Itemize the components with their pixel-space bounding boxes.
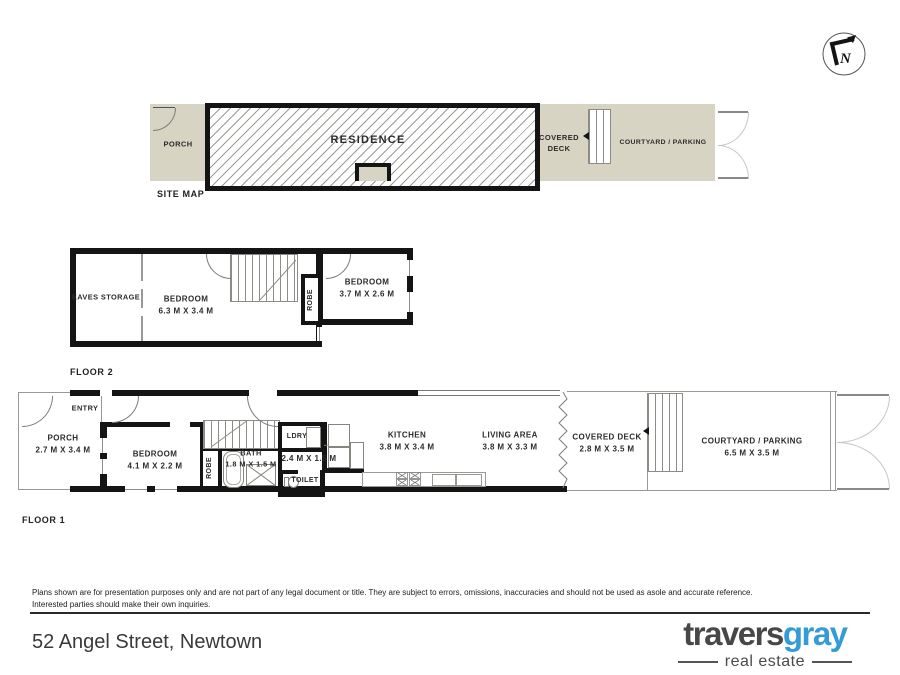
window (317, 327, 323, 341)
stove-icon (396, 472, 422, 486)
fridge-icon (328, 424, 350, 447)
boundary-line (647, 470, 648, 490)
wall (278, 491, 325, 497)
room-label-courtyard: COURTYARD / PARKING 6.5 M X 3.5 M (702, 435, 803, 458)
gate-swing-icon (837, 442, 890, 489)
brand-name-part1: travers (683, 615, 783, 652)
brand-name-part2: gray (783, 615, 847, 652)
room-label-kitchen: KITCHEN 3.8 M X 3.4 M (380, 429, 435, 452)
wall (320, 470, 325, 497)
stairs-direction-icon (583, 132, 589, 140)
room-label-bath: BATH 1.8 M X 1.5 M (225, 448, 276, 469)
boundary-line (567, 391, 837, 392)
divider (30, 612, 870, 614)
gate-swing-icon (718, 145, 749, 179)
divider-gap (140, 281, 144, 289)
room-label-f1-porch: PORCH 2.7 M X 3.4 M (36, 432, 91, 455)
room-label-f1-robe: ROBE (205, 457, 215, 479)
property-address: 52 Angel Street, Newtown (32, 631, 262, 654)
compass-n-letter: N (839, 51, 852, 67)
floorplan-page: N RESIDENCE PORCH COVERED DECK COURTYARD… (0, 0, 900, 675)
room-label-f2-bedroom1: BEDROOM 6.3 M X 3.4 M (159, 293, 214, 316)
room-label-f2-bedroom2: BEDROOM 3.7 M X 2.6 M (340, 276, 395, 299)
north-arrow-icon: N (819, 29, 869, 79)
room-label-eaves-storage: EAVES STORAGE (72, 293, 140, 304)
window-band (418, 390, 560, 396)
room-label-hall-dims: 2.4 M X 1.6 M (282, 453, 337, 465)
door-opening (170, 422, 190, 427)
room-label-deck: COVERED DECK 2.8 M X 3.5 M (572, 431, 641, 454)
window (407, 292, 413, 312)
room-label-site-porch: PORCH (163, 140, 192, 151)
tagline-dash (812, 661, 852, 663)
cabinet-icon (350, 442, 364, 469)
floor2-title: FLOOR 2 (70, 367, 113, 377)
fence-line (830, 392, 831, 491)
site-residence-notch (355, 163, 391, 181)
wall-left (100, 422, 107, 486)
room-label-site-covered-deck: COVERED DECK (539, 133, 579, 155)
boundary-line (567, 490, 837, 491)
room-label-f1-bedroom: BEDROOM 4.1 M X 2.2 M (128, 448, 183, 471)
brand-tagline: real estate (678, 653, 852, 671)
room-label-toilet: TOILET (291, 476, 318, 486)
deck-stairs (647, 393, 683, 472)
window (155, 486, 177, 492)
stairs-direction-icon (643, 427, 649, 435)
room-label-residence: RESIDENCE (331, 133, 406, 149)
gate-swing-icon (718, 112, 749, 146)
sink-icon (456, 474, 482, 486)
disclaimer-line1: Plans shown are for presentation purpose… (32, 587, 882, 599)
window (100, 438, 107, 453)
gate-swing-icon (837, 396, 890, 443)
room-label-entry: ENTRY (72, 404, 99, 415)
door-swing-icon (112, 396, 139, 423)
tagline-dash (678, 661, 718, 663)
site-map-title: SITE MAP (157, 189, 204, 199)
room-label-living: LIVING AREA 3.8 M X 3.3 M (482, 429, 538, 452)
wall (218, 451, 222, 486)
floor1-title: FLOOR 1 (22, 515, 65, 525)
fence-line (835, 392, 836, 491)
room-label-f2-robe: ROBE (306, 289, 316, 311)
eaves-divider-wall (141, 254, 143, 341)
washer-icon (306, 427, 321, 448)
bifold-door-icon (557, 392, 569, 490)
sink-icon (432, 474, 456, 486)
window (407, 260, 413, 276)
site-stairs (588, 109, 611, 164)
room-label-site-courtyard: COURTYARD / PARKING (620, 138, 707, 148)
divider-gap (140, 308, 144, 316)
window (125, 486, 147, 492)
disclaimer-text: Plans shown are for presentation purpose… (32, 587, 882, 612)
window (100, 459, 107, 474)
brand-name: traversgray (678, 617, 852, 650)
room-label-ldry: LDRY (287, 432, 307, 442)
entry-opening (100, 390, 112, 396)
stairs-diagonal (230, 254, 296, 300)
disclaimer-line2: Interested parties should make their own… (32, 599, 882, 611)
wall (278, 470, 298, 474)
tagline-text: real estate (725, 653, 805, 671)
brand-logo: traversgray real estate (678, 617, 852, 671)
